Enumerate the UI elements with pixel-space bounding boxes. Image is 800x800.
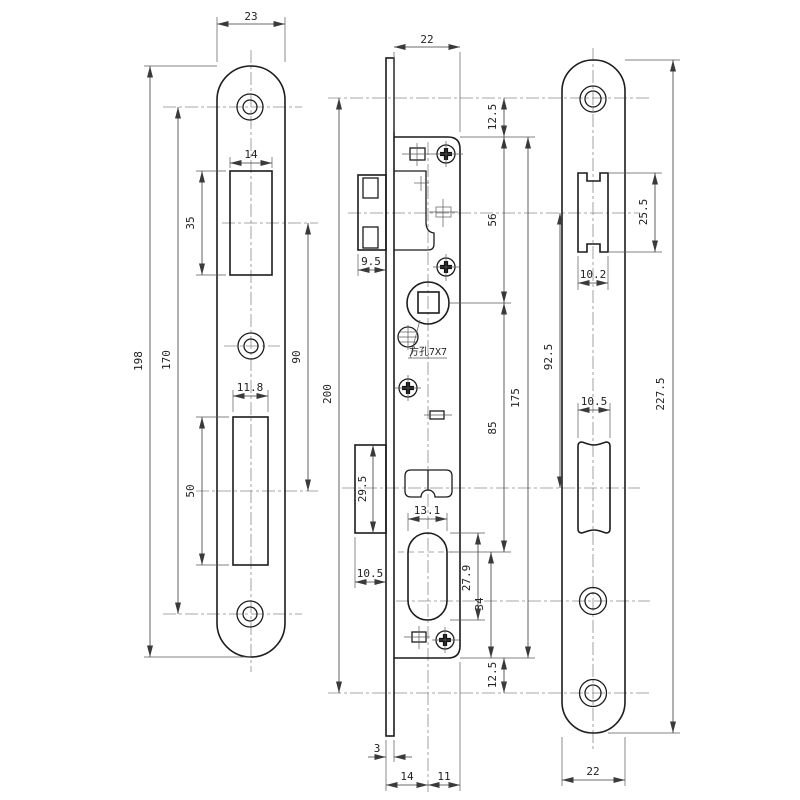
- dim-fp-overall-height: 227.5: [654, 377, 667, 410]
- dim-fp-plate-width: 22: [586, 765, 599, 778]
- dim-fp-cutout-distance: 92.5: [542, 344, 555, 371]
- dim-strike-hole-spacing: 170: [160, 350, 173, 370]
- dim-case-width: 22: [420, 33, 433, 46]
- dim-body-hole-spacing: 200: [321, 384, 334, 404]
- dim-strike-latch-cutout-height: 35: [184, 216, 197, 229]
- dim-strike-plate-width: 23: [244, 10, 257, 23]
- dim-faceplate-bottom-offset: 12.5: [486, 662, 499, 689]
- latch-bolt: [358, 175, 386, 250]
- spindle-square-hole: [418, 292, 439, 313]
- dim-backset-front: 14: [400, 770, 414, 783]
- dim-deadbolt-height: 29.5: [356, 476, 369, 503]
- dim-faceplate-top-offset: 12.5: [486, 104, 499, 131]
- dim-backset-rear: 11: [437, 770, 450, 783]
- lock-faceplate-edge: [386, 58, 394, 736]
- dim-deadbolt-projection: 10.5: [357, 567, 384, 580]
- dim-cylinder-width: 13.1: [414, 504, 441, 517]
- square-hole-note: 方孔7X7: [409, 345, 447, 358]
- dim-strike-latch-cutout-width: 14: [244, 148, 258, 161]
- faceplate-bolt-cutout: [578, 442, 610, 533]
- dim-strike-bolt-cutout-width: 11.8: [237, 381, 264, 394]
- dim-faceplate-thickness: 3: [374, 742, 381, 755]
- dim-spindle-to-cylinder: 85: [486, 421, 499, 434]
- dim-fp-latch-cutout-width: 10.2: [580, 268, 607, 281]
- dim-strike-bolt-cutout-height: 50: [184, 484, 197, 497]
- dim-cylinder-height: 27.9: [460, 565, 473, 592]
- dim-strike-cutout-distance: 90: [290, 350, 303, 363]
- lock-technical-drawing: 23 14 35 198 170 90 11.8 50 22 12.5 56 9…: [0, 0, 800, 800]
- lock-body-view: [355, 58, 463, 736]
- centerlines: [163, 48, 652, 792]
- dim-case-top-to-spindle: 56: [486, 213, 499, 226]
- dim-case-height: 175: [509, 388, 522, 408]
- dimension-labels: 23 14 35 198 170 90 11.8 50 22 12.5 56 9…: [132, 10, 667, 783]
- cylinder-oval-hole: [408, 533, 447, 620]
- dim-cylinder-to-case-bottom: 34: [473, 597, 486, 611]
- dim-fp-latch-cutout-height: 25.5: [637, 199, 650, 226]
- dim-strike-overall-height: 198: [132, 351, 145, 371]
- dim-latch-projection: 9.5: [361, 255, 381, 268]
- lock-case-outline: [394, 137, 460, 658]
- dim-fp-bolt-cutout-width: 10.5: [581, 395, 608, 408]
